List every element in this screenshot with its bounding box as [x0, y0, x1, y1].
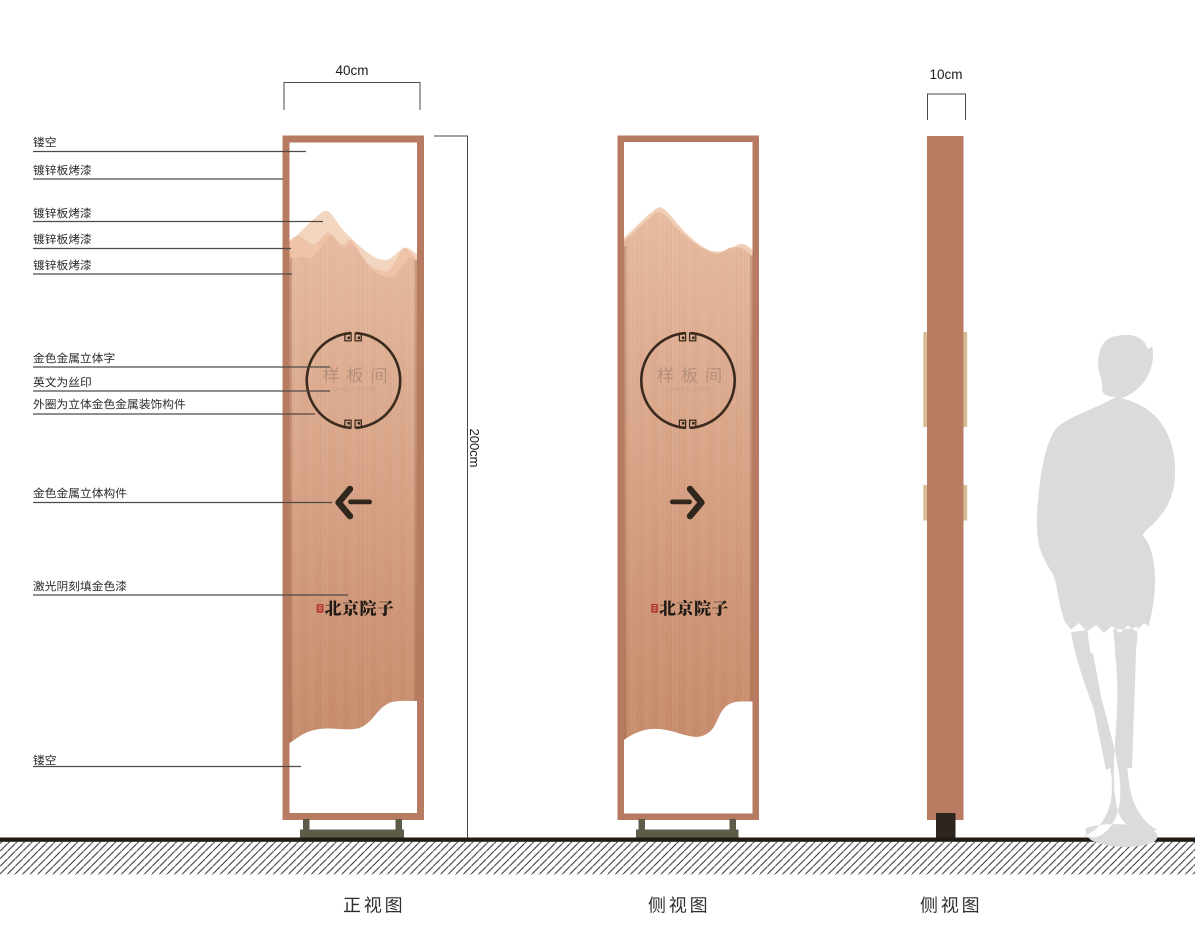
svg-text:SAMPLE ROOM: SAMPLE ROOM [667, 387, 711, 393]
svg-text:40cm: 40cm [335, 63, 368, 78]
svg-text:200cm: 200cm [467, 428, 482, 467]
svg-text:SAMPLE ROOM: SAMPLE ROOM [332, 387, 376, 393]
svg-text:10cm: 10cm [929, 67, 962, 82]
